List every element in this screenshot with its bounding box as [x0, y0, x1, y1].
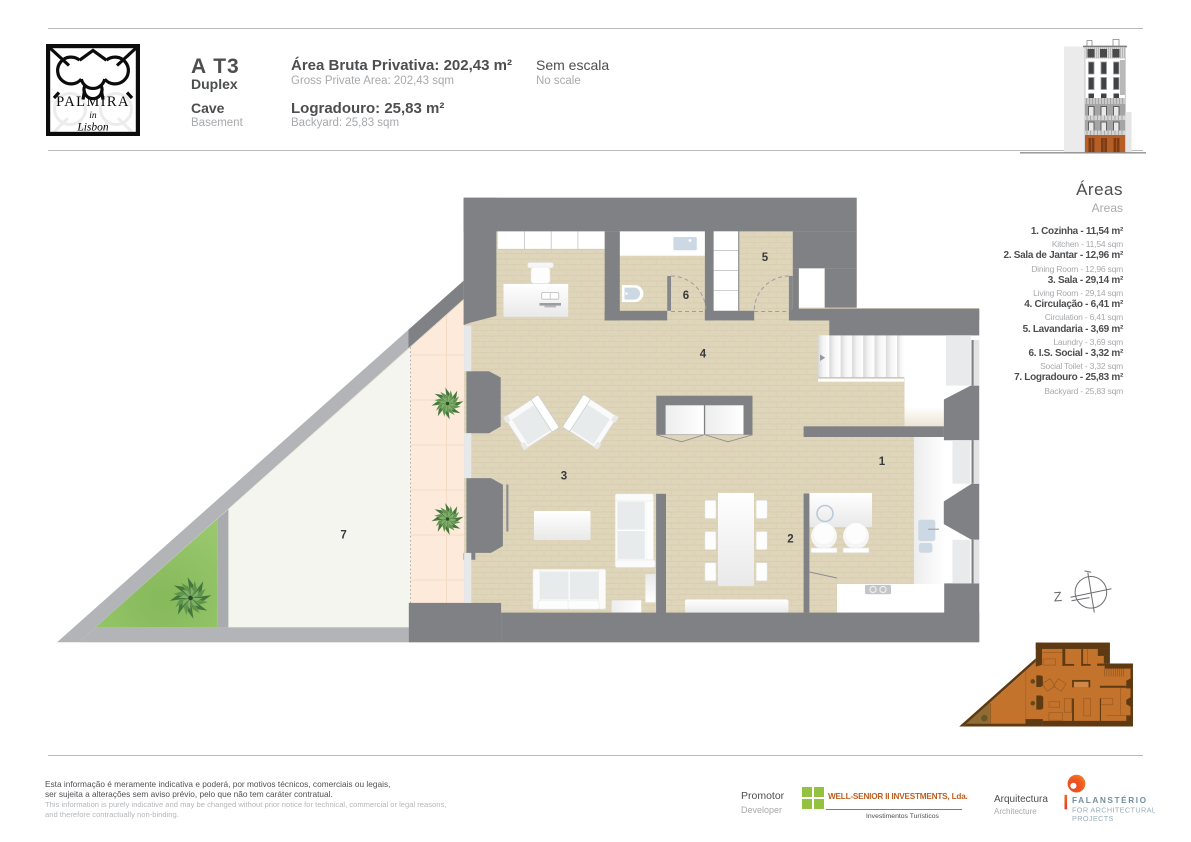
svg-text:7: 7: [340, 530, 346, 542]
svg-text:5: 5: [762, 252, 769, 264]
svg-text:6: 6: [683, 290, 689, 302]
svg-text:3: 3: [561, 471, 567, 483]
svg-text:4: 4: [700, 349, 707, 361]
svg-text:2: 2: [787, 534, 793, 546]
svg-text:Z: Z: [1053, 589, 1062, 605]
svg-text:1: 1: [879, 456, 886, 468]
